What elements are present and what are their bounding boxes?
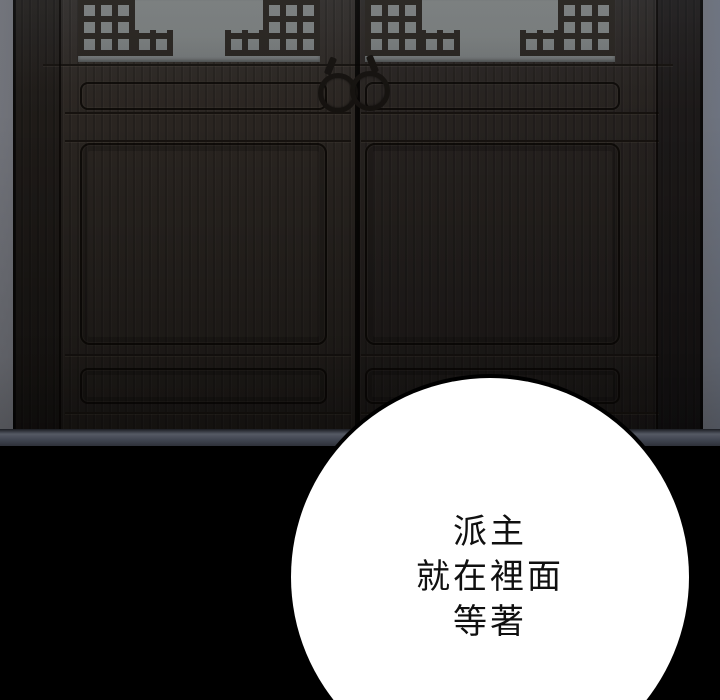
- door-knocker-ring-right: [350, 71, 390, 111]
- door-left-bottom-panel: [80, 368, 327, 404]
- lattice-window-right: [365, 0, 615, 62]
- door-edge-left: [13, 0, 16, 430]
- lattice-fret-icon: [558, 0, 615, 56]
- lattice-window-left: [78, 0, 320, 62]
- lattice-fret-icon: [420, 30, 460, 56]
- door-stile-seam-2: [656, 0, 658, 430]
- lattice-fret-icon: [263, 0, 320, 56]
- lattice-fret-icon: [78, 0, 135, 56]
- speech-bubble-text: 派主 就在裡面 等著: [416, 510, 564, 645]
- door-left-groove-2: [65, 140, 351, 142]
- door-left-groove-1: [65, 112, 351, 114]
- door-right-groove-1: [361, 112, 659, 114]
- door-left-main-panel: [80, 143, 327, 345]
- door-assembly: [13, 0, 703, 430]
- lattice-fret-icon: [520, 30, 560, 56]
- lattice-fret-icon: [225, 30, 265, 56]
- speech-line: 等著: [453, 600, 527, 645]
- speech-line: 派主: [453, 510, 527, 555]
- door-stile-seam-1: [59, 0, 61, 430]
- door-right-groove-3: [361, 354, 659, 356]
- door-left-groove-3: [65, 354, 351, 356]
- door-left-top-panel: [80, 82, 327, 110]
- door-center-seam: [355, 0, 360, 430]
- door-right-groove-2: [361, 140, 659, 142]
- comic-panel: 派主 就在裡面 等著: [0, 0, 720, 700]
- door-right-top-panel: [365, 82, 620, 110]
- speech-line: 就在裡面: [416, 555, 564, 600]
- door-scene: [0, 0, 720, 446]
- door-left-groove-4: [65, 412, 351, 414]
- lattice-fret-icon: [133, 30, 173, 56]
- lattice-fret-icon: [365, 0, 422, 56]
- door-edge-right: [700, 0, 703, 430]
- door-right-main-panel: [365, 143, 620, 345]
